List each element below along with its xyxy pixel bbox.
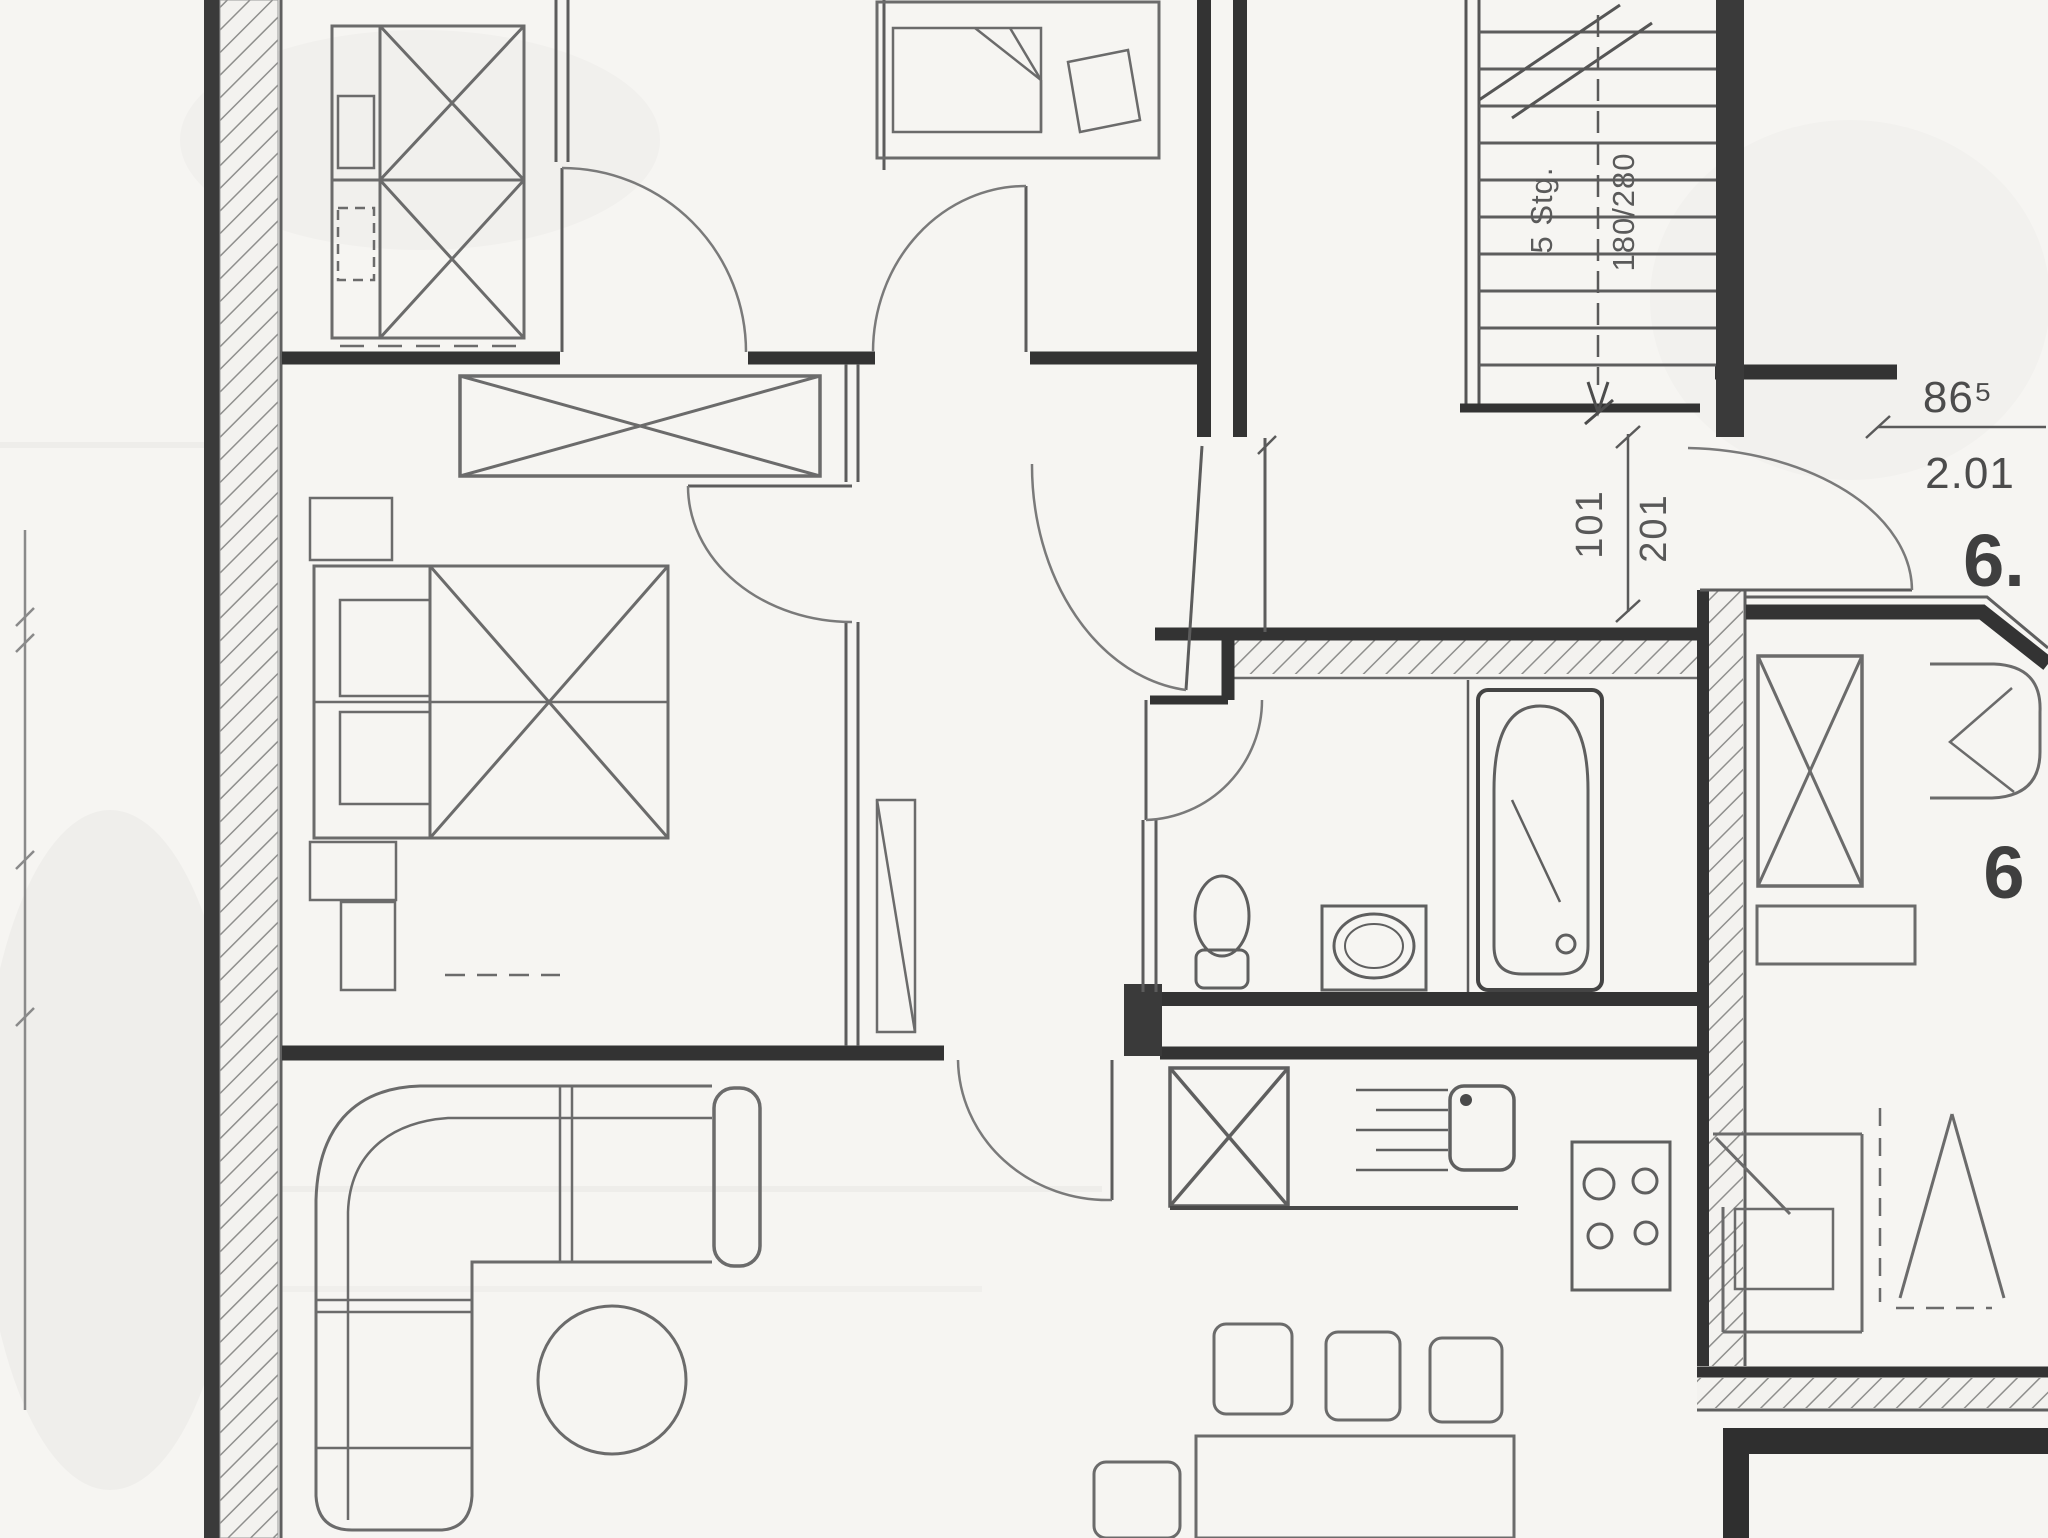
- floor-plan-scan: 5 Stg. 180/280 101 201 86⁵ 2.01 6. 6: [0, 0, 2048, 1538]
- dim-opening-inner: 101: [1569, 489, 1611, 558]
- dim-door-width: 86⁵: [1923, 373, 1993, 422]
- left-outer-wall: [204, 0, 220, 1538]
- floor-plan-drawing: 5 Stg. 180/280 101 201 86⁵ 2.01 6. 6: [0, 0, 2048, 1538]
- bath-north-wall-hatch: [1230, 640, 1700, 674]
- stairs-flight-label: 5 Stg.: [1524, 167, 1559, 254]
- bottom-party-wall-hatch: [1697, 1378, 2048, 1408]
- dim-door-clear: 2.01: [1925, 449, 2015, 498]
- stair-right-wall: [1716, 0, 1744, 437]
- apartment-number: 6.: [1963, 519, 2025, 602]
- right-party-wall-hatch: [1709, 590, 1743, 1366]
- stairs-rise-run-label: 180/280: [1606, 152, 1641, 271]
- dim-opening-outer: 201: [1633, 493, 1675, 562]
- room-number: 6: [1983, 831, 2024, 914]
